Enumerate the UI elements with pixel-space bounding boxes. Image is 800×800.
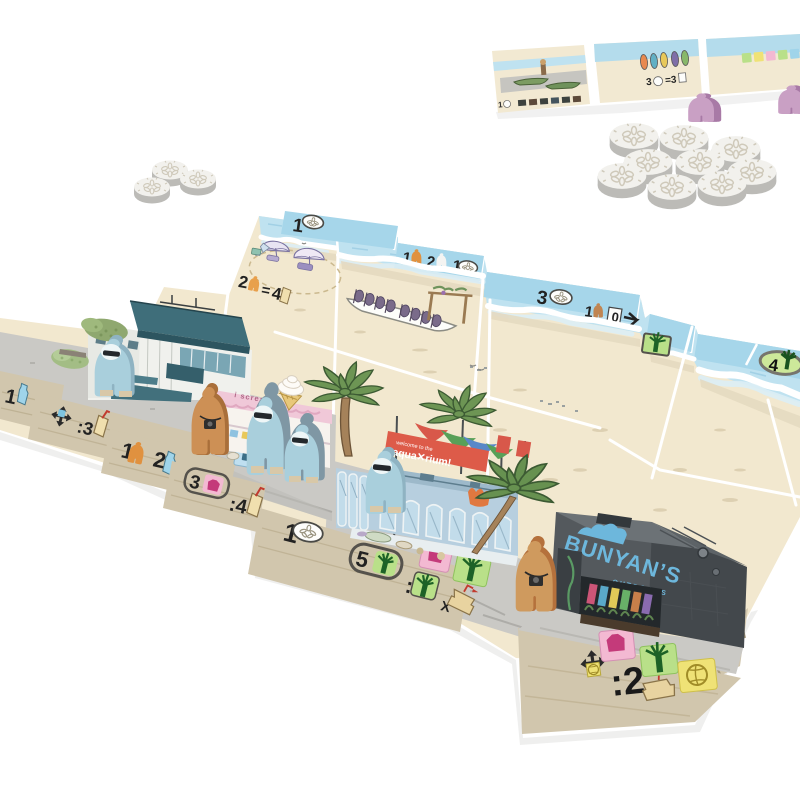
svg-text::2: :2: [609, 660, 647, 705]
svg-text:=3: =3: [665, 75, 678, 87]
